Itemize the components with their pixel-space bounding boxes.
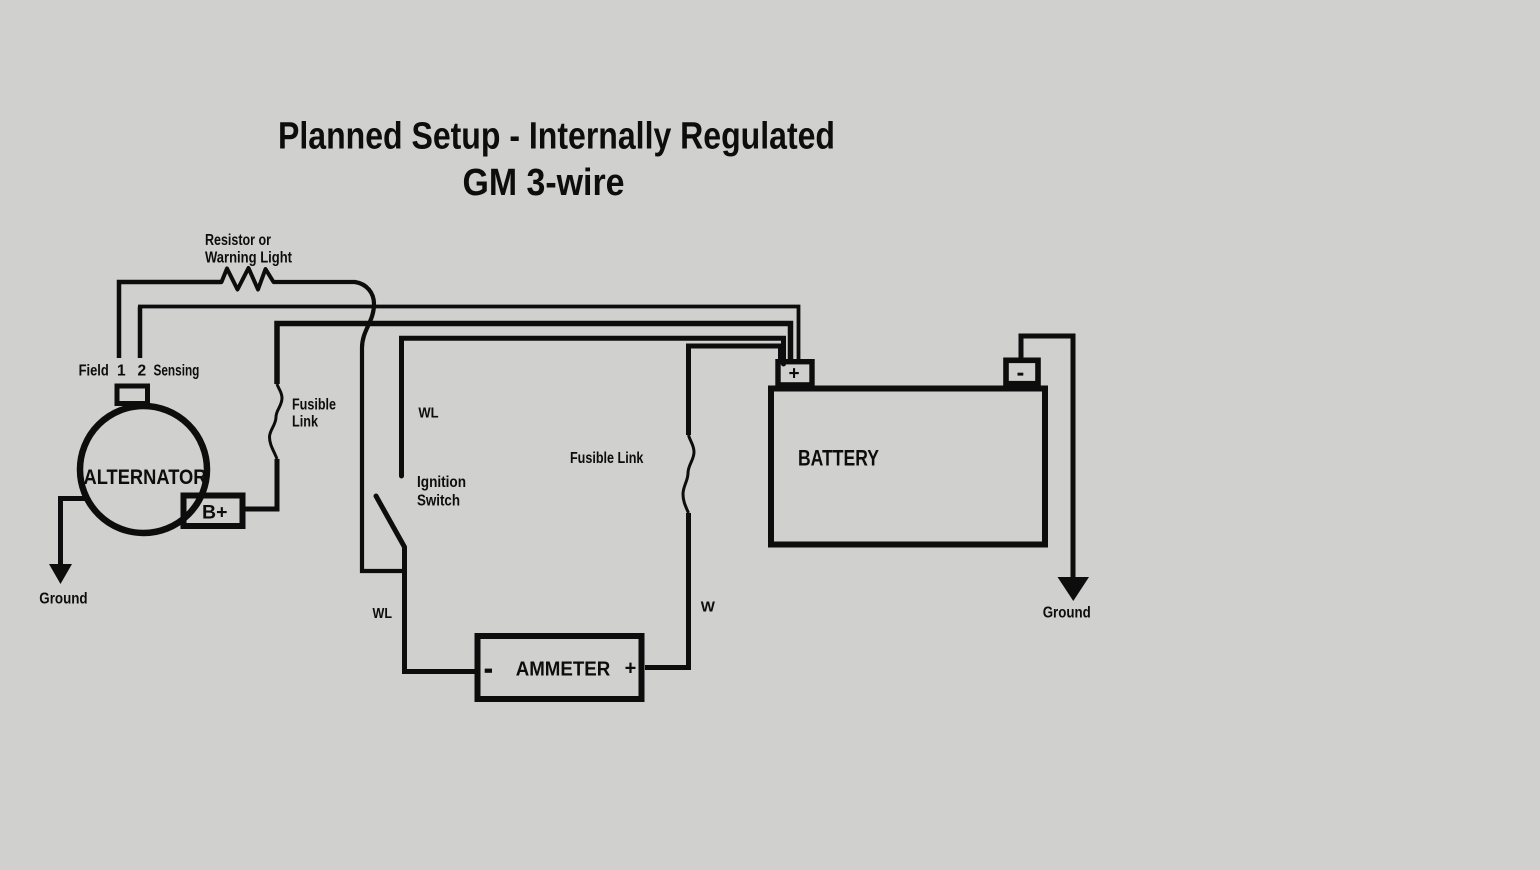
svg-text:Planned Setup - Internally Reg: Planned Setup - Internally Regulated bbox=[278, 116, 835, 158]
svg-text:GM 3-wire: GM 3-wire bbox=[463, 162, 625, 204]
svg-text:AMMETER: AMMETER bbox=[516, 659, 611, 681]
svg-text:Ground: Ground bbox=[39, 591, 87, 608]
svg-text:+: + bbox=[788, 364, 799, 385]
svg-text:Field: Field bbox=[79, 363, 109, 380]
svg-text:+: + bbox=[625, 658, 637, 680]
svg-text:Ground: Ground bbox=[1043, 605, 1091, 622]
svg-text:WL: WL bbox=[418, 405, 438, 422]
svg-text:Fusible: Fusible bbox=[292, 397, 336, 414]
svg-text:Switch: Switch bbox=[417, 493, 460, 510]
svg-text:Fusible Link: Fusible Link bbox=[570, 450, 643, 467]
svg-text:1: 1 bbox=[117, 363, 126, 380]
svg-text:B+: B+ bbox=[202, 502, 227, 524]
svg-text:ALTERNATOR: ALTERNATOR bbox=[84, 465, 207, 489]
svg-text:BATTERY: BATTERY bbox=[798, 446, 879, 471]
svg-text:Sensing: Sensing bbox=[154, 363, 200, 380]
svg-text:Warning Light: Warning Light bbox=[205, 250, 292, 267]
svg-text:Link: Link bbox=[292, 414, 318, 431]
svg-text:W: W bbox=[701, 598, 716, 615]
svg-text:Ignition: Ignition bbox=[417, 474, 466, 491]
svg-text:WL: WL bbox=[373, 605, 393, 622]
svg-text:2: 2 bbox=[138, 363, 147, 380]
svg-text:Resistor or: Resistor or bbox=[205, 232, 271, 249]
